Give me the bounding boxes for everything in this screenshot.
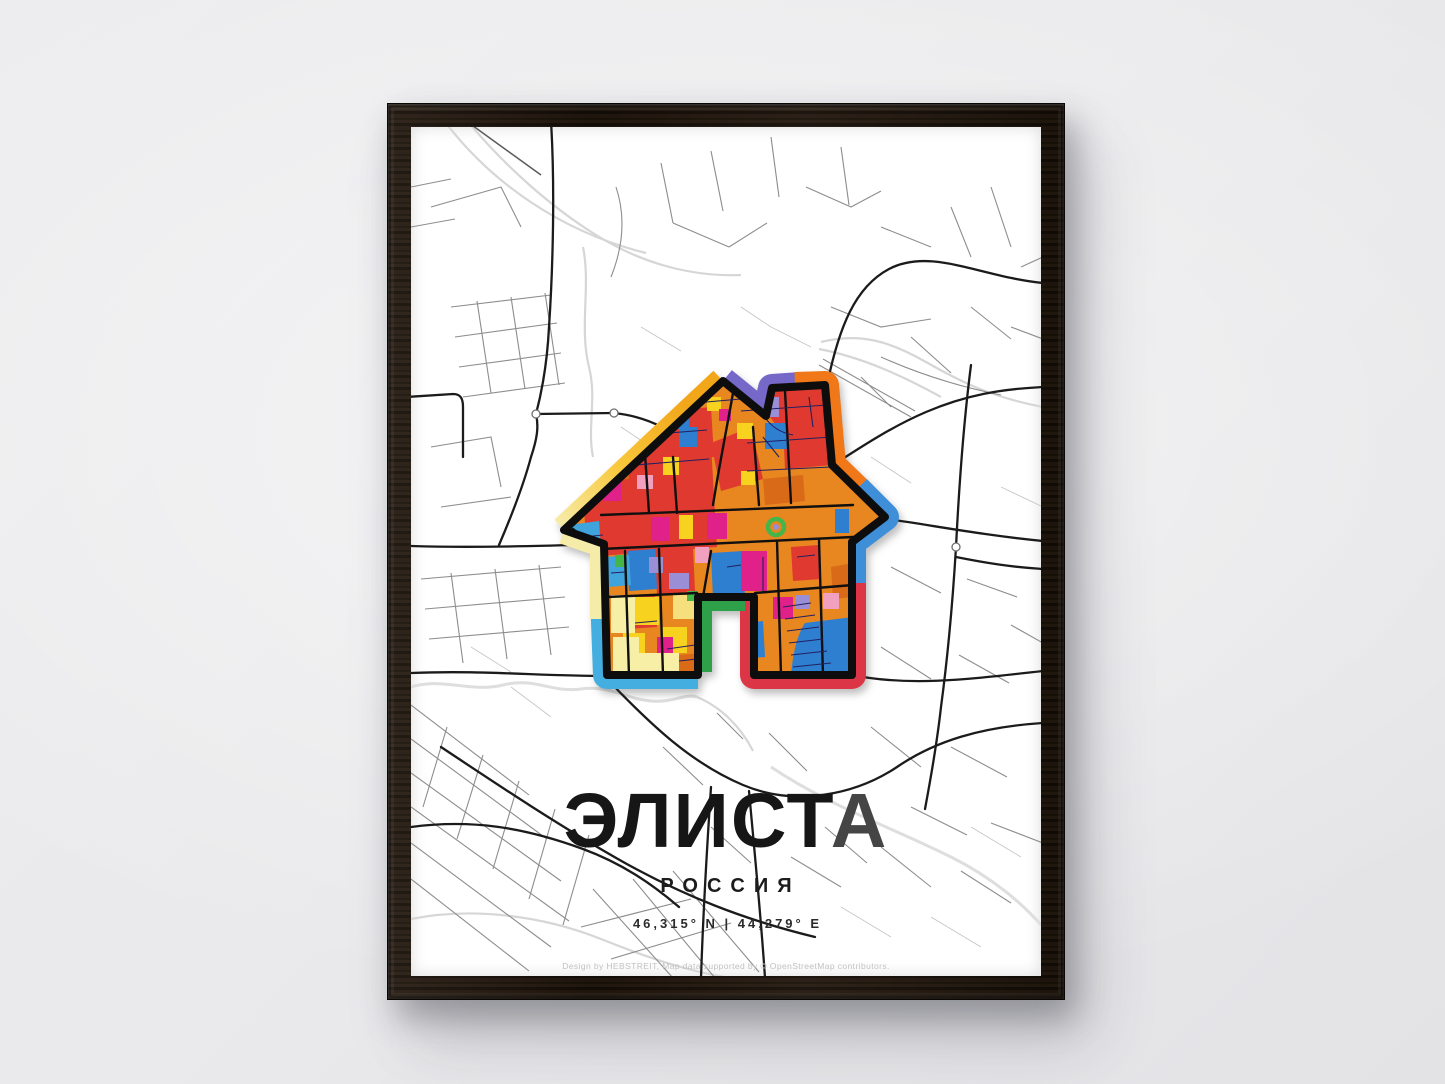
road-junction-node <box>532 410 540 418</box>
roundabout-center <box>773 524 779 530</box>
house-icon <box>564 381 885 675</box>
road-junction-node <box>610 409 618 417</box>
picture-frame: ЭЛИСТА РОССИЯ 46,315° N | 44,279° E Desi… <box>387 103 1065 1000</box>
map-canvas <box>411 127 1041 976</box>
map-poster: ЭЛИСТА РОССИЯ 46,315° N | 44,279° E Desi… <box>411 127 1041 976</box>
road-junction-node <box>952 543 960 551</box>
scene-wall: { "poster": { "title": { "main": "ЭЛИСТ"… <box>0 0 1445 1084</box>
